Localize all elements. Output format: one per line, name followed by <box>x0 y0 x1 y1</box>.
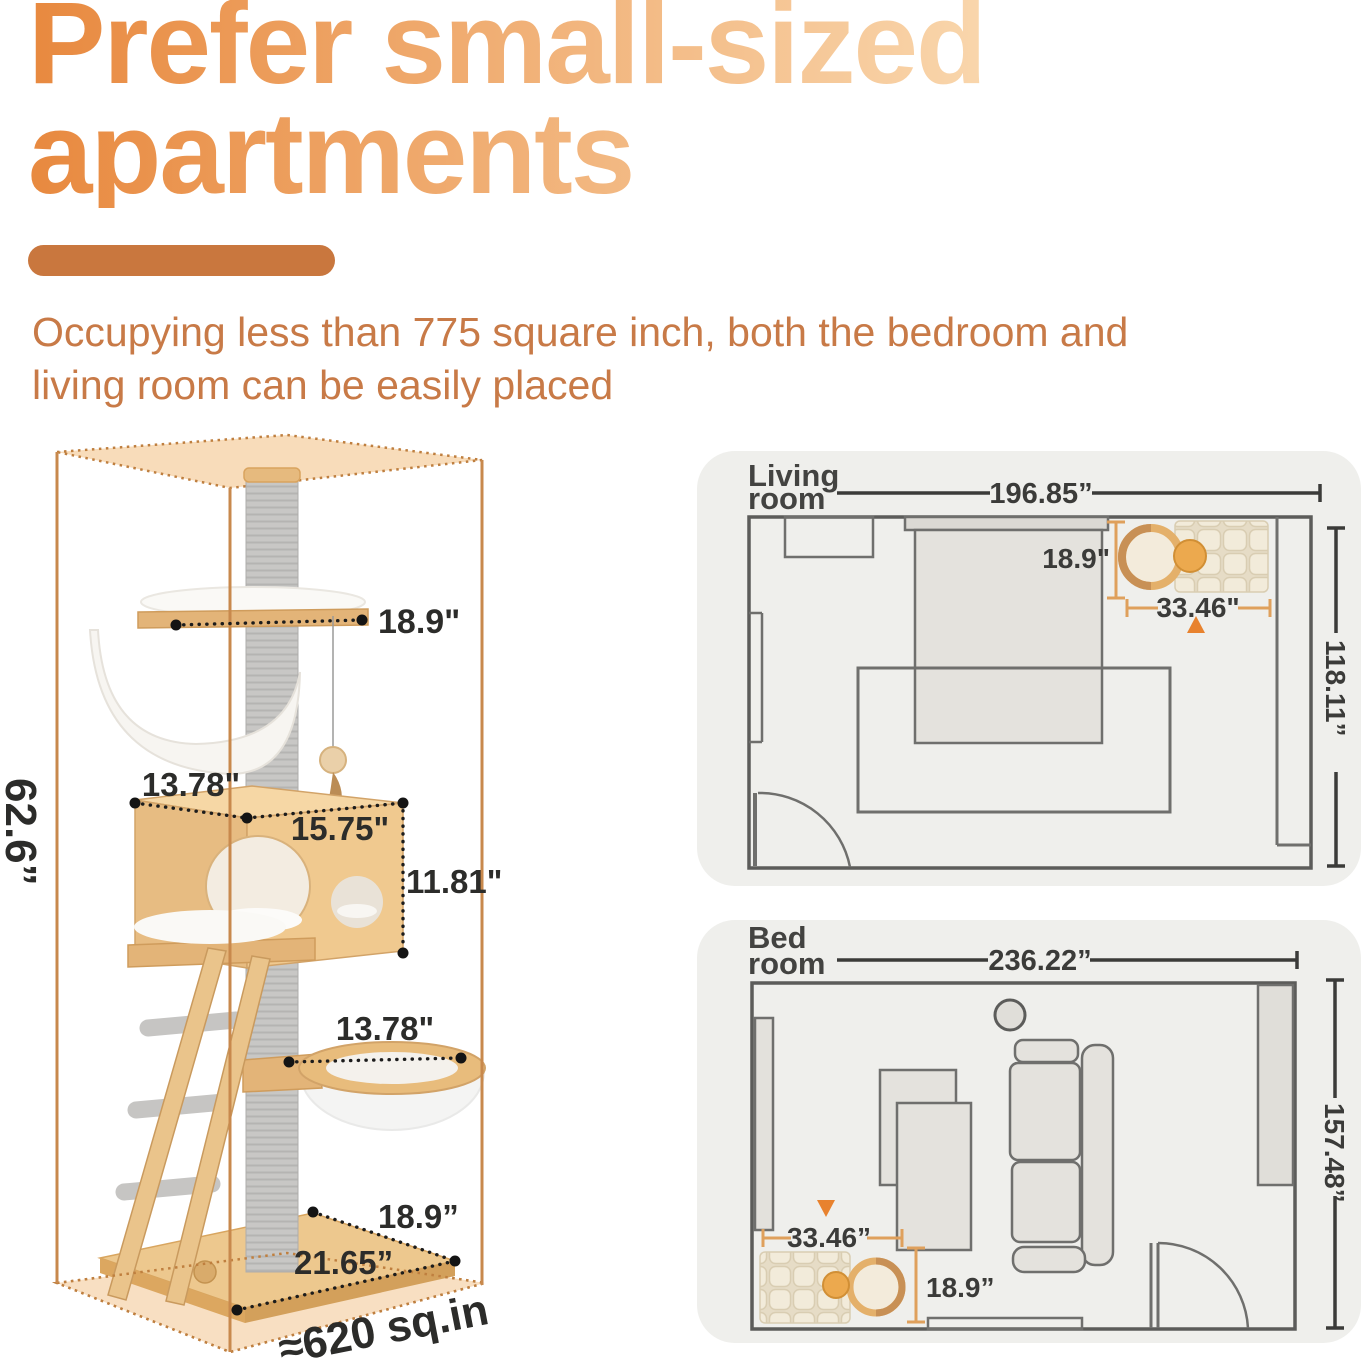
cat-tree-dimension-illustration: 18.9" 13.78" 15.75" 11.81" 13.78" 18.9” … <box>0 428 560 1371</box>
label-condo-depth: 13.78" <box>142 766 240 803</box>
bedroom-title-line2: room <box>748 946 826 981</box>
label-base-width: 21.65” <box>294 1244 393 1281</box>
hanging-ball-toy <box>320 616 346 812</box>
subtitle-line1: Occupying less than 775 square inch, bot… <box>32 306 1128 359</box>
bedroom-cat-tree-footprint <box>760 1252 902 1323</box>
bedroom-tree-depth-label: 18.9” <box>926 1272 995 1303</box>
bedroom-floorplan: Bed room 236.22” <box>697 920 1361 1344</box>
label-condo-height: 11.81" <box>406 863 502 900</box>
page-title: Prefer small-sized apartments <box>28 0 985 208</box>
infographic-page: Prefer small-sized apartments Occupying … <box>0 0 1372 1371</box>
living-room-title-line2: room <box>748 481 826 516</box>
page-title-line2: apartments <box>28 98 985 208</box>
post-top-cap <box>244 468 300 482</box>
label-base-depth: 18.9” <box>378 1198 459 1235</box>
label-capsule-width: 13.78" <box>336 1010 434 1047</box>
living-width-label: 196.85” <box>989 478 1092 510</box>
page-subtitle: Occupying less than 775 square inch, bot… <box>32 306 1128 412</box>
bedroom-depth-label: 157.48” <box>1319 1103 1350 1203</box>
bedroom-width-label: 236.22” <box>988 945 1091 977</box>
living-depth-label: 118.11” <box>1320 640 1351 737</box>
bedroom-tree-width-label: 33.46” <box>787 1222 871 1253</box>
accent-divider-bar <box>28 245 335 276</box>
subtitle-line2: living room can be easily placed <box>32 359 1128 412</box>
label-condo-width: 15.75" <box>291 810 389 847</box>
living-cat-tree-footprint <box>1122 521 1268 592</box>
living-tree-depth-label: 18.9" <box>1042 543 1110 574</box>
label-overall-height: 62.6” <box>0 778 45 886</box>
living-room-floorplan: Living room 196.85” <box>697 451 1361 886</box>
label-top-platform-width: 18.9" <box>378 603 460 641</box>
living-tree-width-label: 33.46" <box>1156 592 1239 623</box>
page-title-line1: Prefer small-sized <box>28 0 985 98</box>
